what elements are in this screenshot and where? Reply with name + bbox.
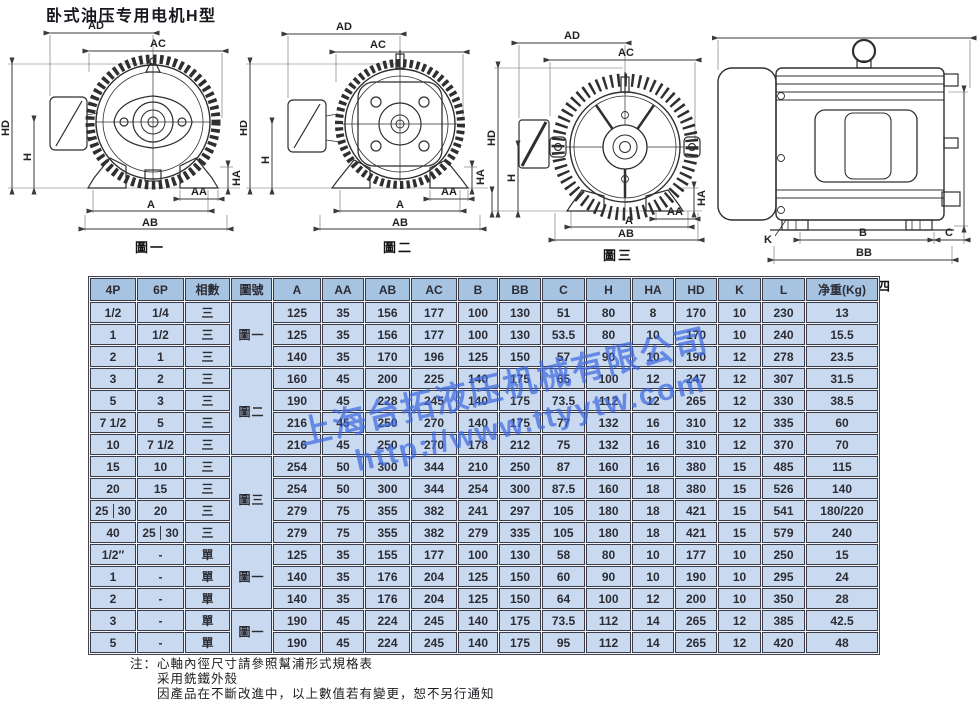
table-cell: 579 (762, 522, 805, 543)
table-cell: 178 (458, 434, 498, 455)
table-cell: 190 (273, 632, 321, 653)
dim-label-ac: AC (150, 38, 166, 50)
spec-sheet-page: 卧式油压专用电机H型 (0, 0, 980, 711)
table-cell: 160 (586, 456, 631, 477)
table-cell: 100 (458, 302, 498, 323)
dim-label-ad: AD (564, 30, 580, 42)
table-cell: 24 (806, 566, 878, 587)
table-header-cell: A (273, 278, 321, 301)
table-cell: 150 (499, 566, 541, 587)
table-cell: 53.5 (542, 324, 585, 345)
dim-label-a: A (147, 199, 155, 211)
table-cell: 176 (365, 588, 410, 609)
table-cell: 50 (322, 456, 364, 477)
table-cell: 300 (365, 456, 410, 477)
table-cell: 160 (273, 368, 321, 389)
table-cell: 115 (806, 456, 878, 477)
table-cell: 15 (718, 456, 761, 477)
table-cell: 421 (675, 522, 717, 543)
table-cell: 80 (586, 302, 631, 323)
table-cell: 155 (365, 544, 410, 565)
table-cell: 100 (458, 544, 498, 565)
table-cell: 190 (273, 610, 321, 631)
table-cell: 35 (322, 302, 364, 323)
table-cell: 245 (411, 390, 457, 411)
table-cell: 100 (586, 588, 631, 609)
table-cell: 254 (273, 478, 321, 499)
table-cell: 31.5 (806, 368, 878, 389)
dim-label-c: C (945, 227, 953, 239)
table-cell: 310 (675, 434, 717, 455)
dim-label-ad: AD (88, 20, 104, 32)
table-cell: 2 (137, 368, 184, 389)
table-cell: 180 (586, 500, 631, 521)
table-header-cell: H (586, 278, 631, 301)
table-cell: 270 (411, 412, 457, 433)
table-cell: 60 (542, 566, 585, 587)
table-cell: 140 (273, 566, 321, 587)
table-cell: 170 (365, 346, 410, 367)
table-cell: 15 (718, 478, 761, 499)
table-cell: 177 (411, 302, 457, 323)
table-cell: 420 (762, 632, 805, 653)
table-cell: 270 (411, 434, 457, 455)
table-cell: 90 (586, 346, 631, 367)
table-cell: 5 (137, 412, 184, 433)
table-cell: 112 (586, 610, 631, 631)
table-header-cell: C (542, 278, 585, 301)
table-cell: 250 (365, 412, 410, 433)
table-cell: 28 (806, 588, 878, 609)
table-header-cell: 4P (90, 278, 136, 301)
table-cell: 20 (90, 478, 136, 499)
table-cell: 216 (273, 434, 321, 455)
table-cell: 35 (322, 544, 364, 565)
table-cell: 10 (632, 346, 674, 367)
table-cell: 385 (762, 610, 805, 631)
table-cell: 190 (273, 390, 321, 411)
table-cell: 254 (273, 456, 321, 477)
table-cell: 10 (718, 302, 761, 323)
table-cell: 5 (90, 632, 136, 653)
table-cell: 380 (675, 478, 717, 499)
table-cell: 57 (542, 346, 585, 367)
table-header-cell: B (458, 278, 498, 301)
table-header-cell: L (762, 278, 805, 301)
table-cell: 200 (675, 588, 717, 609)
table-cell: 300 (499, 478, 541, 499)
table-cell: 212 (499, 434, 541, 455)
table-cell: 45 (322, 368, 364, 389)
table-cell: 三 (185, 346, 230, 367)
table-cell: 150 (499, 346, 541, 367)
table-cell: 279 (273, 522, 321, 543)
table-cell: 2 (90, 346, 136, 367)
footnotes: 注：心軸內徑尺寸請參照幫浦形式規格表 采用銑鐵外殼 因產品在不斷改進中，以上數值… (130, 657, 495, 702)
table-cell: 35 (322, 566, 364, 587)
table-cell: 541 (762, 500, 805, 521)
table-cell: 12 (632, 588, 674, 609)
table-cell: 140 (458, 390, 498, 411)
table-cell: 204 (411, 588, 457, 609)
table-cell: 三 (185, 324, 230, 345)
table-cell: 177 (411, 544, 457, 565)
table-cell: 12 (632, 368, 674, 389)
dim-label-bb: BB (856, 247, 872, 259)
table-header-cell: AB (365, 278, 410, 301)
table-cell: 73.5 (542, 390, 585, 411)
table-header-cell: K (718, 278, 761, 301)
table-cell: 307 (762, 368, 805, 389)
dim-label-ab: AB (142, 217, 158, 229)
dim-label-ab: AB (392, 217, 408, 229)
table-cell: 140 (458, 610, 498, 631)
table-cell: 170 (675, 324, 717, 345)
dim-label-a: A (396, 199, 404, 211)
table-cell: 3 (137, 390, 184, 411)
table-cell: 70 (806, 434, 878, 455)
table-cell: 單 (185, 566, 230, 587)
table-cell: 三 (185, 456, 230, 477)
table-cell: 三 (185, 390, 230, 411)
table-cell: 12 (718, 368, 761, 389)
table-cell: 1 (90, 324, 136, 345)
table-cell: 310 (675, 412, 717, 433)
table-cell: 140 (458, 632, 498, 653)
note-prefix: 注： (130, 657, 157, 671)
table-cell: 196 (411, 346, 457, 367)
table-cell: 10 (137, 456, 184, 477)
table-cell: 80 (586, 324, 631, 345)
table-cell: 335 (499, 522, 541, 543)
table-cell: 15.5 (806, 324, 878, 345)
table-cell: 105 (542, 522, 585, 543)
table-cell: 23.5 (806, 346, 878, 367)
dim-label-ac: AC (370, 39, 386, 51)
table-cell: 245 (411, 632, 457, 653)
figure-1: AD AC HD H HA AA A AB 圖一 (0, 20, 265, 267)
table-header-cell: HD (675, 278, 717, 301)
table-cell: 250 (499, 456, 541, 477)
table-cell: 65 (542, 368, 585, 389)
table-cell: 45 (322, 412, 364, 433)
dim-label-aa: AA (441, 186, 457, 198)
table-cell: 130 (499, 544, 541, 565)
table-cell: 2530 (137, 522, 184, 543)
table-cell: - (137, 588, 184, 609)
figure-3: AD AC HD H HA AA A AB 圖三 (486, 20, 726, 275)
table-cell: 三 (185, 500, 230, 521)
note-line-2: 采用銑鐵外殼 (157, 672, 495, 687)
table-cell: 180 (586, 522, 631, 543)
table-cell: 10 (718, 324, 761, 345)
table-cell: 87.5 (542, 478, 585, 499)
table-cell: 87 (542, 456, 585, 477)
table-cell: 125 (458, 566, 498, 587)
table-cell: 200 (365, 368, 410, 389)
table-cell: 1/4 (137, 302, 184, 323)
table-cell: 75 (322, 500, 364, 521)
table-cell: 130 (499, 324, 541, 345)
table-cell: 380 (675, 456, 717, 477)
note-line-3: 因產品在不斷改進中，以上數值若有變更，恕不另行通知 (157, 687, 495, 702)
figure-2-caption: 圖二 (383, 240, 413, 255)
dim-label-a: A (625, 215, 633, 227)
table-cell: 279 (458, 522, 498, 543)
table-cell: 3 (90, 610, 136, 631)
table-cell: 15 (806, 544, 878, 565)
table-cell: 12 (718, 632, 761, 653)
table-cell: 35 (322, 324, 364, 345)
table-cell: - (137, 610, 184, 631)
note-line-1: 注：心軸內徑尺寸請參照幫浦形式規格表 (130, 657, 495, 672)
table-cell: 100 (458, 324, 498, 345)
table-cell: 382 (411, 500, 457, 521)
table-cell: 355 (365, 522, 410, 543)
table-cell: 10 (632, 324, 674, 345)
dim-label-ha: HA (696, 190, 708, 206)
table-cell: 265 (675, 610, 717, 631)
table-cell: 100 (586, 368, 631, 389)
table-cell: 190 (675, 566, 717, 587)
table-cell: 14 (632, 610, 674, 631)
table-cell: 77 (542, 412, 585, 433)
table-cell: 單 (185, 544, 230, 565)
table-cell: 228 (365, 390, 410, 411)
table-cell: 3 (90, 368, 136, 389)
table-cell: 7 1/2 (90, 412, 136, 433)
table-cell: 177 (411, 324, 457, 345)
dim-label-hd: HD (240, 120, 250, 136)
table-cell: 140 (273, 588, 321, 609)
dim-label-h: H (506, 174, 518, 182)
table-cell: 125 (458, 588, 498, 609)
table-cell: 180/220 (806, 500, 878, 521)
table-cell: 330 (762, 390, 805, 411)
table-cell: 140 (273, 346, 321, 367)
table-cell: 58 (542, 544, 585, 565)
figure-ref-cell: 圖一 (231, 302, 272, 367)
table-cell: 176 (365, 566, 410, 587)
table-cell: 140 (458, 412, 498, 433)
table-header-cell: 6P (137, 278, 184, 301)
table-cell: 90 (586, 566, 631, 587)
table-cell: 297 (499, 500, 541, 521)
figure-4: B C BB K (712, 14, 978, 275)
table-cell: 300 (365, 478, 410, 499)
dim-label-hd: HD (486, 130, 498, 146)
table-cell: 三 (185, 434, 230, 455)
table-cell: 382 (411, 522, 457, 543)
table-cell: 12 (718, 390, 761, 411)
table-cell: 12 (718, 610, 761, 631)
table-cell: 51 (542, 302, 585, 323)
table-cell: 45 (322, 632, 364, 653)
table-cell: 156 (365, 302, 410, 323)
table-cell: 12 (718, 434, 761, 455)
table-cell: 421 (675, 500, 717, 521)
table-cell: 1 (137, 346, 184, 367)
table-cell: 35 (322, 588, 364, 609)
table-cell: 13 (806, 302, 878, 323)
table-cell: 112 (586, 632, 631, 653)
table-cell: 279 (273, 500, 321, 521)
table-cell: 265 (675, 390, 717, 411)
table-cell: 8 (632, 302, 674, 323)
table-cell: 75 (322, 522, 364, 543)
table-cell: 1/2 (137, 324, 184, 345)
table-cell: 247 (675, 368, 717, 389)
table-cell: 370 (762, 434, 805, 455)
dim-label-aa: AA (667, 206, 683, 218)
table-cell: 344 (411, 478, 457, 499)
table-cell: 單 (185, 632, 230, 653)
table-cell: 355 (365, 500, 410, 521)
table-cell: 175 (499, 390, 541, 411)
table-header-cell: 圖號 (231, 278, 272, 301)
table-cell: 350 (762, 588, 805, 609)
figure-ref-cell: 圖一 (231, 544, 272, 609)
table-cell: 156 (365, 324, 410, 345)
table-cell: 265 (675, 632, 717, 653)
table-cell: 三 (185, 302, 230, 323)
dim-label-ac: AC (618, 47, 634, 59)
table-cell: 80 (586, 544, 631, 565)
table-cell: 45 (322, 434, 364, 455)
table-cell: 10 (718, 566, 761, 587)
table-cell: 240 (806, 522, 878, 543)
table-cell: 三 (185, 478, 230, 499)
figure-2-drawing: AD AC HD H HA AA A AB 圖二 (240, 20, 492, 262)
dim-label-ab: AB (618, 228, 634, 240)
spec-table: 4P6P相數圖號AAAABACBBBCHHAHDKL净重(Kg)1/21/4三圖… (88, 276, 880, 655)
figure-ref-cell: 圖二 (231, 368, 272, 455)
table-cell: 132 (586, 434, 631, 455)
table-cell: 12 (718, 412, 761, 433)
table-cell: 190 (675, 346, 717, 367)
table-cell: 48 (806, 632, 878, 653)
figure-2: AD AC HD H HA AA A AB 圖二 (240, 20, 492, 267)
table-cell: 10 (632, 544, 674, 565)
table-cell: 1/2″ (90, 544, 136, 565)
table-cell: 225 (411, 368, 457, 389)
table-cell: 1 (90, 566, 136, 587)
table-cell: 240 (762, 324, 805, 345)
table-cell: 204 (411, 566, 457, 587)
table-cell: 130 (499, 302, 541, 323)
figure-1-drawing: AD AC HD H HA AA A AB 圖一 (0, 20, 265, 262)
table-cell: 150 (499, 588, 541, 609)
table-header-cell: AA (322, 278, 364, 301)
table-cell: 175 (499, 412, 541, 433)
table-cell: 2530 (90, 500, 136, 521)
table-cell: 10 (632, 566, 674, 587)
table-cell: - (137, 566, 184, 587)
table-cell: 125 (273, 324, 321, 345)
dim-label-h: H (260, 156, 272, 164)
table-cell: 45 (322, 390, 364, 411)
table-cell: 7 1/2 (137, 434, 184, 455)
table-cell: 175 (499, 632, 541, 653)
table-header-cell: BB (499, 278, 541, 301)
table-cell: 10 (718, 588, 761, 609)
table-cell: 18 (632, 500, 674, 521)
figure-4-drawing: B C BB K (712, 14, 978, 270)
table-cell: 15 (718, 500, 761, 521)
table-cell: 單 (185, 610, 230, 631)
table-cell: 三 (185, 368, 230, 389)
table-cell: 1/2 (90, 302, 136, 323)
table-cell: 18 (632, 522, 674, 543)
table-cell: 526 (762, 478, 805, 499)
table-cell: 177 (675, 544, 717, 565)
table-cell: 10 (90, 434, 136, 455)
figure-3-drawing: AD AC HD H HA AA A AB 圖三 (486, 20, 726, 270)
table-cell: 160 (586, 478, 631, 499)
table-cell: 2 (90, 588, 136, 609)
figure-ref-cell: 圖三 (231, 456, 272, 543)
figure-1-caption: 圖一 (135, 240, 165, 255)
table-cell: 125 (458, 346, 498, 367)
table-cell: 485 (762, 456, 805, 477)
table-header-cell: 净重(Kg) (806, 278, 878, 301)
table-cell: 216 (273, 412, 321, 433)
table-cell: 112 (586, 390, 631, 411)
table-cell: 38.5 (806, 390, 878, 411)
table-cell: 16 (632, 434, 674, 455)
table-header-cell: AC (411, 278, 457, 301)
table-cell: 224 (365, 610, 410, 631)
table-cell: 單 (185, 588, 230, 609)
dim-label-h: H (22, 153, 34, 161)
table-cell: 250 (762, 544, 805, 565)
table-cell: 三 (185, 522, 230, 543)
table-cell: 20 (137, 500, 184, 521)
dim-label-aa: AA (191, 186, 207, 198)
table-cell: 10 (718, 544, 761, 565)
table-cell: 73.5 (542, 610, 585, 631)
table-cell: 42.5 (806, 610, 878, 631)
table-cell: 14 (632, 632, 674, 653)
table-cell: 18 (632, 478, 674, 499)
dim-label-hd: HD (0, 120, 12, 136)
table-cell: 15 (718, 522, 761, 543)
table-cell: 335 (762, 412, 805, 433)
table-cell: - (137, 544, 184, 565)
table-cell: 245 (411, 610, 457, 631)
table-cell: 140 (458, 368, 498, 389)
table-cell: 60 (806, 412, 878, 433)
table-cell: 40 (90, 522, 136, 543)
table-cell: 344 (411, 456, 457, 477)
table-cell: 250 (365, 434, 410, 455)
figure-ref-cell: 圖一 (231, 610, 272, 653)
table-cell: 210 (458, 456, 498, 477)
table-cell: 5 (90, 390, 136, 411)
table-cell: 75 (542, 434, 585, 455)
table-cell: 64 (542, 588, 585, 609)
table-cell: 16 (632, 412, 674, 433)
table-cell: 12 (632, 390, 674, 411)
table-cell: 45 (322, 610, 364, 631)
table-header-cell: 相數 (185, 278, 230, 301)
table-cell: 170 (675, 302, 717, 323)
table-header-cell: HA (632, 278, 674, 301)
table-cell: 230 (762, 302, 805, 323)
table-cell: 132 (586, 412, 631, 433)
table-cell: - (137, 632, 184, 653)
figure-3-caption: 圖三 (603, 248, 633, 263)
